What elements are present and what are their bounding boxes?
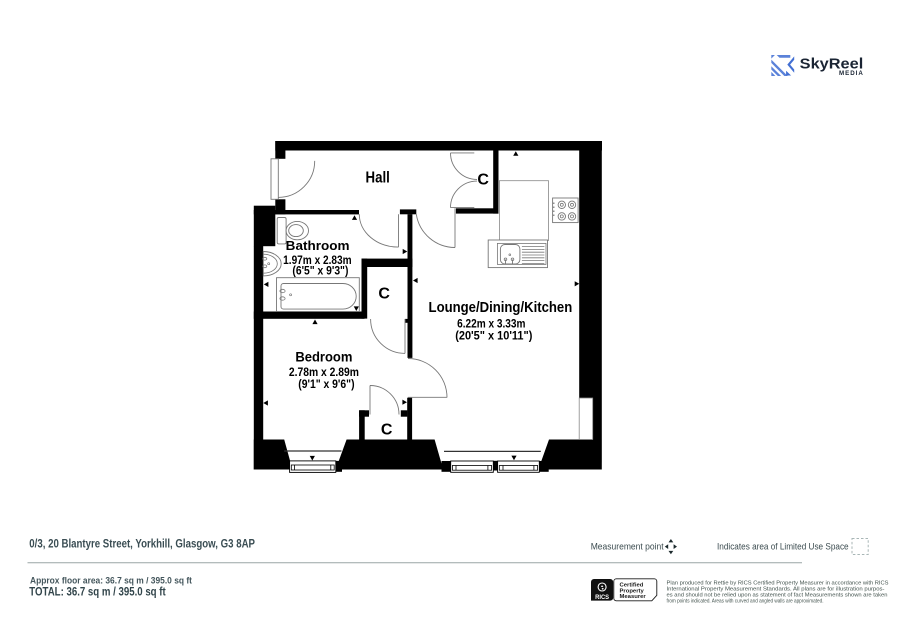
svg-text:C: C: [381, 422, 393, 439]
svg-text:(6'5" x 9'3"): (6'5" x 9'3"): [292, 264, 348, 278]
svg-text:C: C: [378, 286, 390, 303]
svg-text:from points indicated. Areas w: from points indicated. Areas with curved…: [667, 598, 824, 604]
svg-text:Measurer: Measurer: [620, 594, 647, 600]
svg-text:Indicates area of Limited Use: Indicates area of Limited Use Space: [717, 541, 849, 552]
svg-text:(9'1" x 9'6"): (9'1" x 9'6"): [298, 377, 354, 391]
svg-text:Bathroom: Bathroom: [286, 238, 350, 253]
svg-text:(20'5" x 10'11"): (20'5" x 10'11"): [455, 329, 532, 343]
svg-text:MEDIA: MEDIA: [839, 70, 863, 77]
svg-text:TOTAL: 36.7 sq m / 395.0 sq ft: TOTAL: 36.7 sq m / 395.0 sq ft: [29, 585, 165, 599]
svg-text:C: C: [477, 172, 489, 189]
svg-text:Measurement point: Measurement point: [591, 540, 664, 551]
svg-text:Hall: Hall: [366, 170, 390, 187]
svg-text:Lounge/Dining/Kitchen: Lounge/Dining/Kitchen: [429, 300, 573, 316]
svg-text:0/3, 20 Blantyre Street, Yorkh: 0/3, 20 Blantyre Street, Yorkhill, Glasg…: [29, 539, 255, 551]
svg-text:RICS: RICS: [595, 594, 609, 601]
svg-text:Bedroom: Bedroom: [295, 349, 352, 365]
